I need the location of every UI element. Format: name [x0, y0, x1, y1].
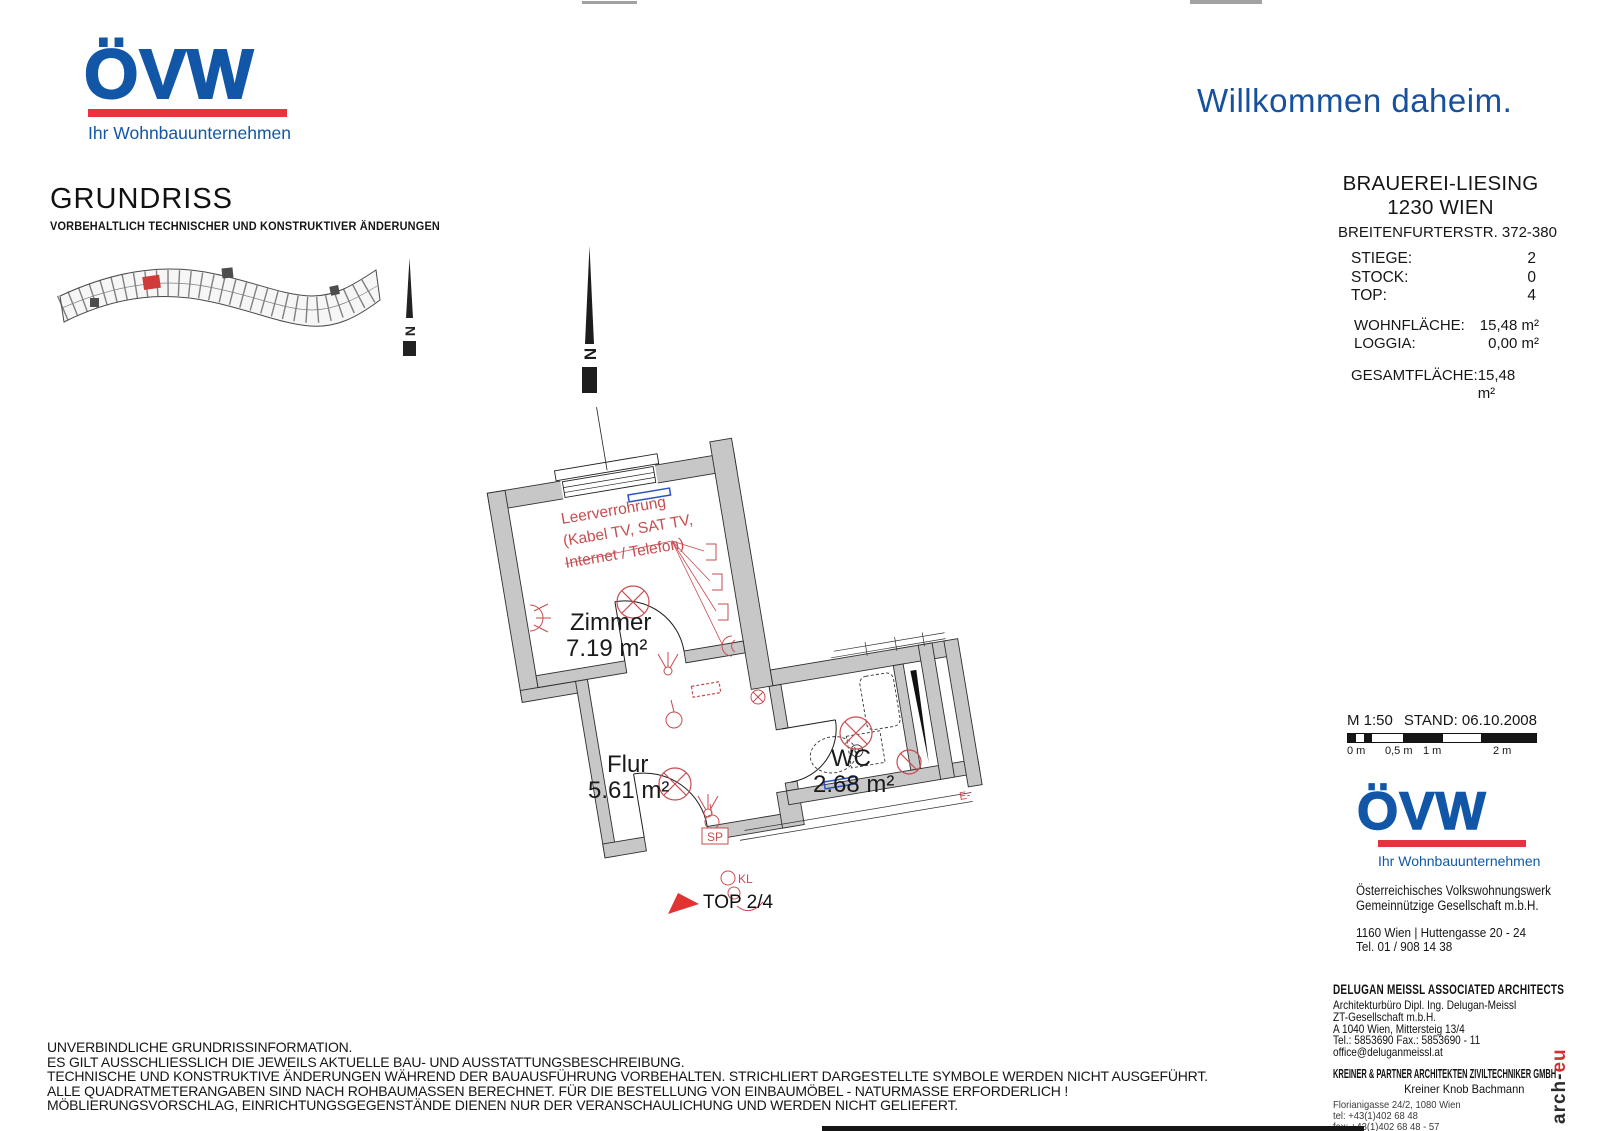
e-label: E- — [959, 789, 972, 803]
room-name: Zimmer — [570, 609, 651, 636]
ovw-logo-text: ÖVW — [1357, 788, 1540, 837]
top-marker: TOP 2/4 — [668, 892, 773, 914]
ovw-logo-footer: ÖVW Ihr Wohnbauunternehmen — [1357, 788, 1540, 869]
scale-block: M 1:50 STAND: 06.10.2008 0 m 0,5 m 1 m 2… — [1347, 712, 1537, 759]
company-line: Österreichisches Volkswohnungswerk — [1356, 884, 1551, 899]
arch-eu-logo: arch-eu — [1549, 1048, 1571, 1124]
disclaimer: UNVERBINDLICHE GRUNDRISSINFORMATION. ES … — [47, 1040, 1208, 1113]
site-dark-cell — [222, 267, 234, 278]
room-area: 2.68 m² — [813, 771, 894, 798]
arch-eu-black: arch- — [1549, 1073, 1570, 1124]
scan-line — [822, 1126, 1364, 1131]
top-label: TOP 2/4 — [703, 892, 773, 913]
phone-line: Tel. 01 / 908 14 38 — [1356, 940, 1526, 954]
dimension-box — [691, 682, 720, 697]
room-name: WC — [831, 745, 871, 772]
north-label: N — [402, 326, 418, 336]
site-dark-cell — [90, 298, 99, 307]
drawing-layer: N N — [0, 0, 1600, 1131]
scale-tick: 1 m — [1423, 745, 1441, 757]
arch-eu-red: eu — [1549, 1048, 1570, 1072]
disclaimer-line: ES GILT AUSSCHLIESSLICH DIE JEWEILS AKTU… — [47, 1055, 1208, 1070]
window-symbol — [545, 398, 662, 500]
architect-name: KREINER & PARTNER ARCHITEKTEN ZIVILTECHN… — [1333, 1067, 1460, 1081]
room-area: 7.19 m² — [566, 635, 647, 662]
grundriss-page: ÖVW Ihr Wohnbauunternehmen GRUNDRISS VOR… — [0, 0, 1600, 1131]
architect-sub: Kreiner Knob Bachmann — [1333, 1082, 1524, 1096]
disclaimer-line: UNVERBINDLICHE GRUNDRISSINFORMATION. — [47, 1040, 1208, 1055]
kl-label: KL — [738, 872, 753, 886]
disclaimer-line: TECHNISCHE UND KONSTRUKTIVE ÄNDERUNGEN W… — [47, 1069, 1208, 1084]
scale-bar — [1347, 733, 1537, 743]
site-dark-cell — [329, 285, 340, 296]
wall-lamp-icon — [530, 604, 551, 632]
section-line — [597, 407, 608, 470]
ovw-address: 1160 Wien | Huttengasse 20 - 24 Tel. 01 … — [1356, 926, 1526, 954]
junction-icon — [751, 690, 765, 704]
scale-tick: 0 m — [1347, 745, 1365, 757]
architect-line: office@deluganmeissl.at — [1333, 1047, 1511, 1059]
disclaimer-line: MÖBLIERUNGSVORSCHLAG, EINRICHTUNGSGEGENS… — [47, 1098, 1208, 1113]
scale-ratio: M 1:50 — [1347, 712, 1393, 729]
sp-box: SP — [702, 828, 728, 844]
north-arrow-small-icon: N — [402, 258, 418, 356]
ovw-logo-tagline: Ihr Wohnbauunternehmen — [1378, 853, 1540, 869]
wall-lamp-icon — [698, 794, 718, 817]
room-labels: Zimmer 7.19 m² Flur 5.61 m² WC 2.68 m² — [566, 609, 894, 804]
architect-lines: Architekturbüro Dipl. Ing. Delugan-Meiss… — [1333, 1000, 1511, 1059]
scale-ticks: 0 m 0,5 m 1 m 2 m — [1347, 745, 1537, 759]
north-arrow-large-icon: N — [581, 246, 600, 393]
ovw-company: Österreichisches Volkswohnungswerk Gemei… — [1356, 884, 1551, 913]
floor-plan — [476, 355, 984, 872]
switch-icon — [666, 700, 719, 829]
site-highlighted-unit — [142, 275, 161, 290]
north-label: N — [581, 348, 600, 360]
scale-tick: 0,5 m — [1385, 745, 1413, 757]
architect-name: DELUGAN MEISSL ASSOCIATED ARCHITECTS — [1333, 982, 1490, 997]
site-plan — [60, 267, 380, 326]
room-area: 5.61 m² — [588, 777, 669, 804]
address-line: 1160 Wien | Huttengasse 20 - 24 — [1356, 926, 1526, 940]
entrance-triangle-icon — [668, 893, 699, 914]
scale-row: M 1:50 STAND: 06.10.2008 — [1347, 712, 1537, 729]
scale-tick: 2 m — [1493, 745, 1511, 757]
wall-lamp-icon — [658, 652, 678, 675]
sp-label: SP — [707, 830, 723, 844]
company-line: Gemeinnützige Gesellschaft m.b.H. — [1356, 899, 1551, 914]
scale-date: STAND: 06.10.2008 — [1404, 712, 1537, 729]
architects-block: DELUGAN MEISSL ASSOCIATED ARCHITECTS Arc… — [1333, 982, 1545, 1131]
room-name: Flur — [607, 751, 648, 778]
